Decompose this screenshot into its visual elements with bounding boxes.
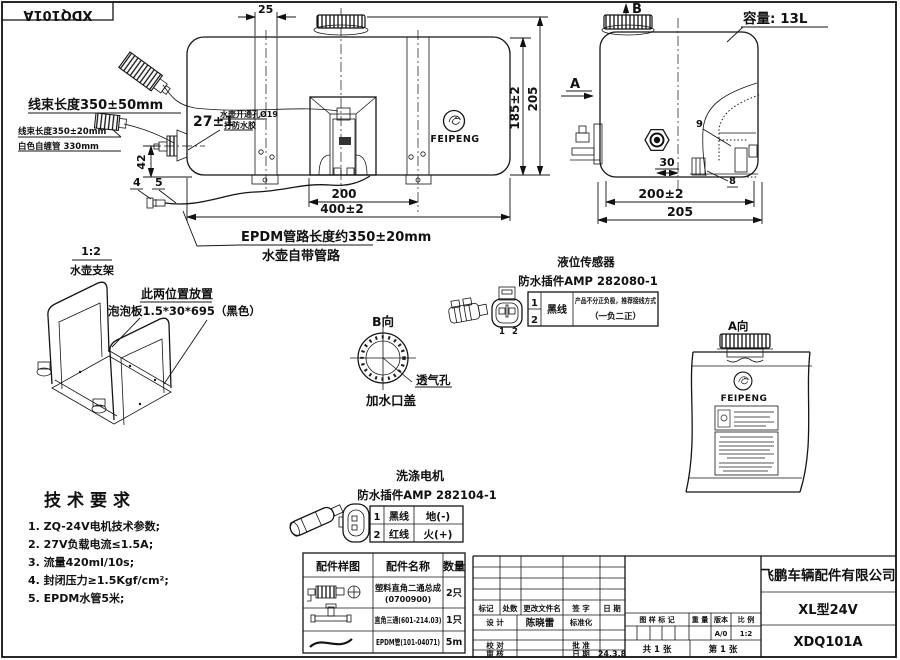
svg-text:42: 42	[135, 154, 148, 169]
balloon-5: 5	[152, 176, 176, 203]
inner-pocket	[688, 83, 759, 177]
part-1-code: (0700900)	[385, 595, 431, 604]
svg-text:A/0: A/0	[715, 630, 728, 638]
bracket-view: 1:2 水壶支架 此两位置放置 泡泡板1.5*30*695（黑色）	[37, 245, 261, 425]
svg-text:日 期: 日 期	[603, 603, 621, 613]
svg-text:1: 1	[374, 512, 381, 523]
svg-text:30: 30	[659, 156, 675, 169]
svg-text:处数: 处数	[502, 603, 518, 613]
balloon-4: 4	[130, 176, 151, 199]
product-label-box-1	[715, 406, 778, 430]
svg-text:1:2: 1:2	[740, 630, 753, 638]
svg-text:24.3.8: 24.3.8	[598, 650, 627, 659]
feipeng-logo-text-a: FEIPENG	[721, 394, 768, 404]
epdm-note-leader	[183, 211, 240, 246]
svg-text:1: 1	[531, 298, 538, 309]
white-tube-label: 白色自缠管 330mm	[18, 141, 99, 152]
svg-text:4: 4	[133, 176, 141, 189]
title-block: 飞鹏车辆配件有限公司 XL型24V XDQ101A 标记 处数 更改文件名 签 …	[473, 556, 896, 659]
feipeng-logo-icon-a	[734, 372, 752, 390]
bracket-scale: 1:2	[81, 245, 101, 258]
svg-text:9: 9	[696, 119, 703, 130]
sensor-pin-1: 1	[499, 327, 505, 337]
svg-text:校 对: 校 对	[486, 640, 504, 650]
svg-text:共 1 张: 共 1 张	[643, 644, 672, 655]
svg-text:比 例: 比 例	[738, 615, 754, 624]
svg-text:400±2: 400±2	[320, 202, 363, 216]
svg-text:日 期: 日 期	[572, 649, 590, 659]
svg-text:标准化: 标准化	[569, 617, 593, 627]
hole-note-leader	[188, 130, 220, 150]
cap-ring	[350, 326, 416, 390]
product-label-box-2	[715, 432, 778, 475]
b-view: B向 透气孔 加水口盖	[350, 314, 452, 408]
drawing-sheet: XDQ101A	[0, 0, 900, 660]
drawing-canvas: XDQ101A	[0, 0, 900, 660]
balloon-8: 8	[707, 171, 738, 187]
svg-text:第 1 张: 第 1 张	[709, 644, 738, 655]
hole-note-1: 水壶开通孔Ø19	[219, 109, 278, 119]
svg-text:200: 200	[331, 187, 356, 201]
corner-code: XDQ101A	[23, 7, 92, 22]
part-2-name: 直角三通(601-214.03)	[375, 615, 442, 625]
svg-text:B: B	[632, 2, 642, 17]
pump-recess	[310, 97, 376, 175]
bracket-note-leader-1	[112, 318, 140, 347]
svg-text:A: A	[570, 77, 580, 92]
pump-outlet-fitting	[146, 130, 205, 161]
hole-note-2: 打防水胶	[224, 120, 256, 130]
svg-text:签 字: 签 字	[571, 603, 590, 613]
bracket-name: 水壶支架	[70, 263, 114, 277]
svg-text:200±2: 200±2	[638, 186, 683, 201]
svg-text:批 准: 批 准	[572, 640, 590, 650]
motor-title: 洗涤电机	[396, 468, 444, 483]
parts-table: 配件样图 配件名称 数量 塑料直角二通总成 (0700900) 2只 直角三通(…	[303, 553, 465, 653]
signature-table: 设 计 陈晓雷 标准化 校 对 批 准 审 核 日 期 24.3.8	[473, 615, 627, 659]
svg-text:设 计: 设 计	[486, 617, 504, 627]
tech-item-5: 5. EPDM水管5米;	[28, 591, 124, 605]
motor-connector: 防水插件AMP 282104-1	[357, 488, 497, 502]
part-3-name: EPDM管(101-04071)	[376, 637, 440, 647]
dim-25: 25	[238, 3, 296, 36]
tech-item-1: 1. ZQ-24V电机技术参数;	[28, 519, 160, 533]
view-a-arrow: A	[561, 77, 593, 96]
a-view-title: A向	[728, 319, 748, 333]
svg-text:205: 205	[526, 86, 540, 111]
side-view: B 容量: 13L A 9 8	[561, 2, 828, 224]
parts-col-sample: 配件样图	[316, 559, 360, 573]
motor-table: 1 黑线 地(-) 2 红线 火(+)	[370, 506, 463, 542]
epdm-note-2: 水壶自带管路	[262, 248, 341, 264]
part-sketch-tee	[311, 604, 351, 622]
sensor-connector-front	[492, 287, 522, 327]
motor-connector-iso	[288, 502, 344, 538]
sensor-connector-iso	[447, 295, 488, 323]
svg-text:红线: 红线	[389, 528, 409, 541]
capacity-note: 容量: 13L	[727, 10, 828, 42]
bracket-note-2: 泡泡板1.5*30*695（黑色）	[108, 304, 261, 318]
mark-scale-table: 图 样 标 记 重 量 版本 比 例 A/0 1:2 共 1 张 第 1 张	[625, 613, 761, 657]
sensor-pin-2: 2	[512, 327, 518, 337]
svg-text:25: 25	[258, 3, 273, 16]
vent-label: 透气孔	[416, 373, 451, 387]
drain-hex-plug	[645, 130, 669, 151]
motor-connector-front	[339, 504, 369, 542]
sensor-table: 1 2 黑线 产品不分正负极，推荐接线方式 （一负二正）	[528, 292, 658, 326]
front-view: 线束长度350±50mm 线束长度350±20mm 白色自缠管 330mm 27…	[18, 3, 550, 264]
svg-text:更改文件名: 更改文件名	[523, 603, 561, 613]
part-3-qty: 5m	[446, 637, 463, 648]
feipeng-logo-icon	[444, 111, 465, 132]
part-1-name: 塑料直角二通总成	[375, 583, 441, 594]
svg-text:8: 8	[729, 176, 736, 187]
model-name: XL型24V	[798, 602, 857, 618]
level-sensor-section: 液位传感器 防水插件AMP 282080-1 1 2 1 2 黑线 产品不分正负…	[447, 255, 658, 337]
epdm-note-1: EPDM管路长度约350±20mm	[241, 229, 431, 245]
svg-text:标记: 标记	[478, 603, 494, 613]
svg-text:重 量: 重 量	[692, 615, 708, 624]
svg-text:2: 2	[531, 315, 538, 326]
svg-text:火(+): 火(+)	[424, 529, 453, 541]
cap-label: 加水口盖	[365, 393, 417, 408]
harness-length-label-2: 线束长度350±20mm	[18, 126, 107, 137]
sensor-title: 液位传感器	[557, 255, 615, 269]
svg-text:容量: 13L: 容量: 13L	[742, 10, 808, 27]
svg-text:5: 5	[155, 176, 163, 189]
svg-text:205: 205	[667, 204, 693, 219]
washer-motor-section: 洗涤电机 防水插件AMP 282104-1 1 黑线 地(-) 2 红线 火(+…	[288, 468, 497, 542]
tech-title: 技术要求	[44, 490, 136, 511]
svg-text:图 样 标 记: 图 样 标 记	[639, 615, 674, 624]
tech-item-4: 4. 封闭压力≥1.5Kgf/cm²;	[28, 573, 169, 587]
a-view-tank	[686, 334, 812, 492]
svg-text:地(-): 地(-)	[426, 510, 450, 523]
svg-text:版本: 版本	[714, 615, 728, 624]
svg-text:产品不分正负极，推荐接线方式: 产品不分正负极，推荐接线方式	[575, 296, 656, 305]
tech-item-3: 3. 流量420ml/10s;	[28, 555, 134, 569]
balloon-9: 9	[696, 119, 731, 146]
side-mount-bracket	[570, 124, 602, 164]
harness-length-label-1: 线束长度350±50mm	[28, 97, 163, 113]
svg-text:185±2: 185±2	[508, 86, 522, 129]
a-view: A向 FEIPENG	[686, 319, 812, 492]
tech-item-2: 2. 27V负载电流≤1.5A;	[28, 537, 153, 551]
side-tank-outline	[600, 32, 758, 177]
parts-col-name: 配件名称	[386, 559, 430, 573]
tech-requirements: 技术要求 1. ZQ-24V电机技术参数; 2. 27V负载电流≤1.5A; 3…	[28, 490, 169, 605]
company-name: 飞鹏车辆配件有限公司	[761, 567, 896, 584]
sensor-connector: 防水插件AMP 282080-1	[518, 274, 658, 288]
svg-text:（一负二正）: （一负二正）	[590, 311, 641, 322]
feipeng-logo-text: FEIPENG	[430, 134, 479, 145]
dim-30: 30	[655, 156, 679, 173]
parts-col-qty: 数量	[443, 559, 465, 573]
part-sketch-elbow-assy	[307, 586, 360, 601]
bracket-note-1: 此两位置放置	[141, 286, 213, 301]
svg-text:黑线: 黑线	[547, 303, 567, 316]
svg-text:陈晓雷: 陈晓雷	[526, 617, 555, 629]
svg-text:黑线: 黑线	[389, 510, 409, 523]
drawing-number: XDQ101A	[793, 635, 862, 650]
svg-text:2: 2	[374, 530, 381, 541]
svg-text:审 核: 审 核	[486, 649, 504, 659]
part-1-qty: 2只	[446, 588, 463, 599]
part-sketch-hose	[310, 639, 352, 647]
part-2-qty: 1只	[446, 615, 463, 626]
